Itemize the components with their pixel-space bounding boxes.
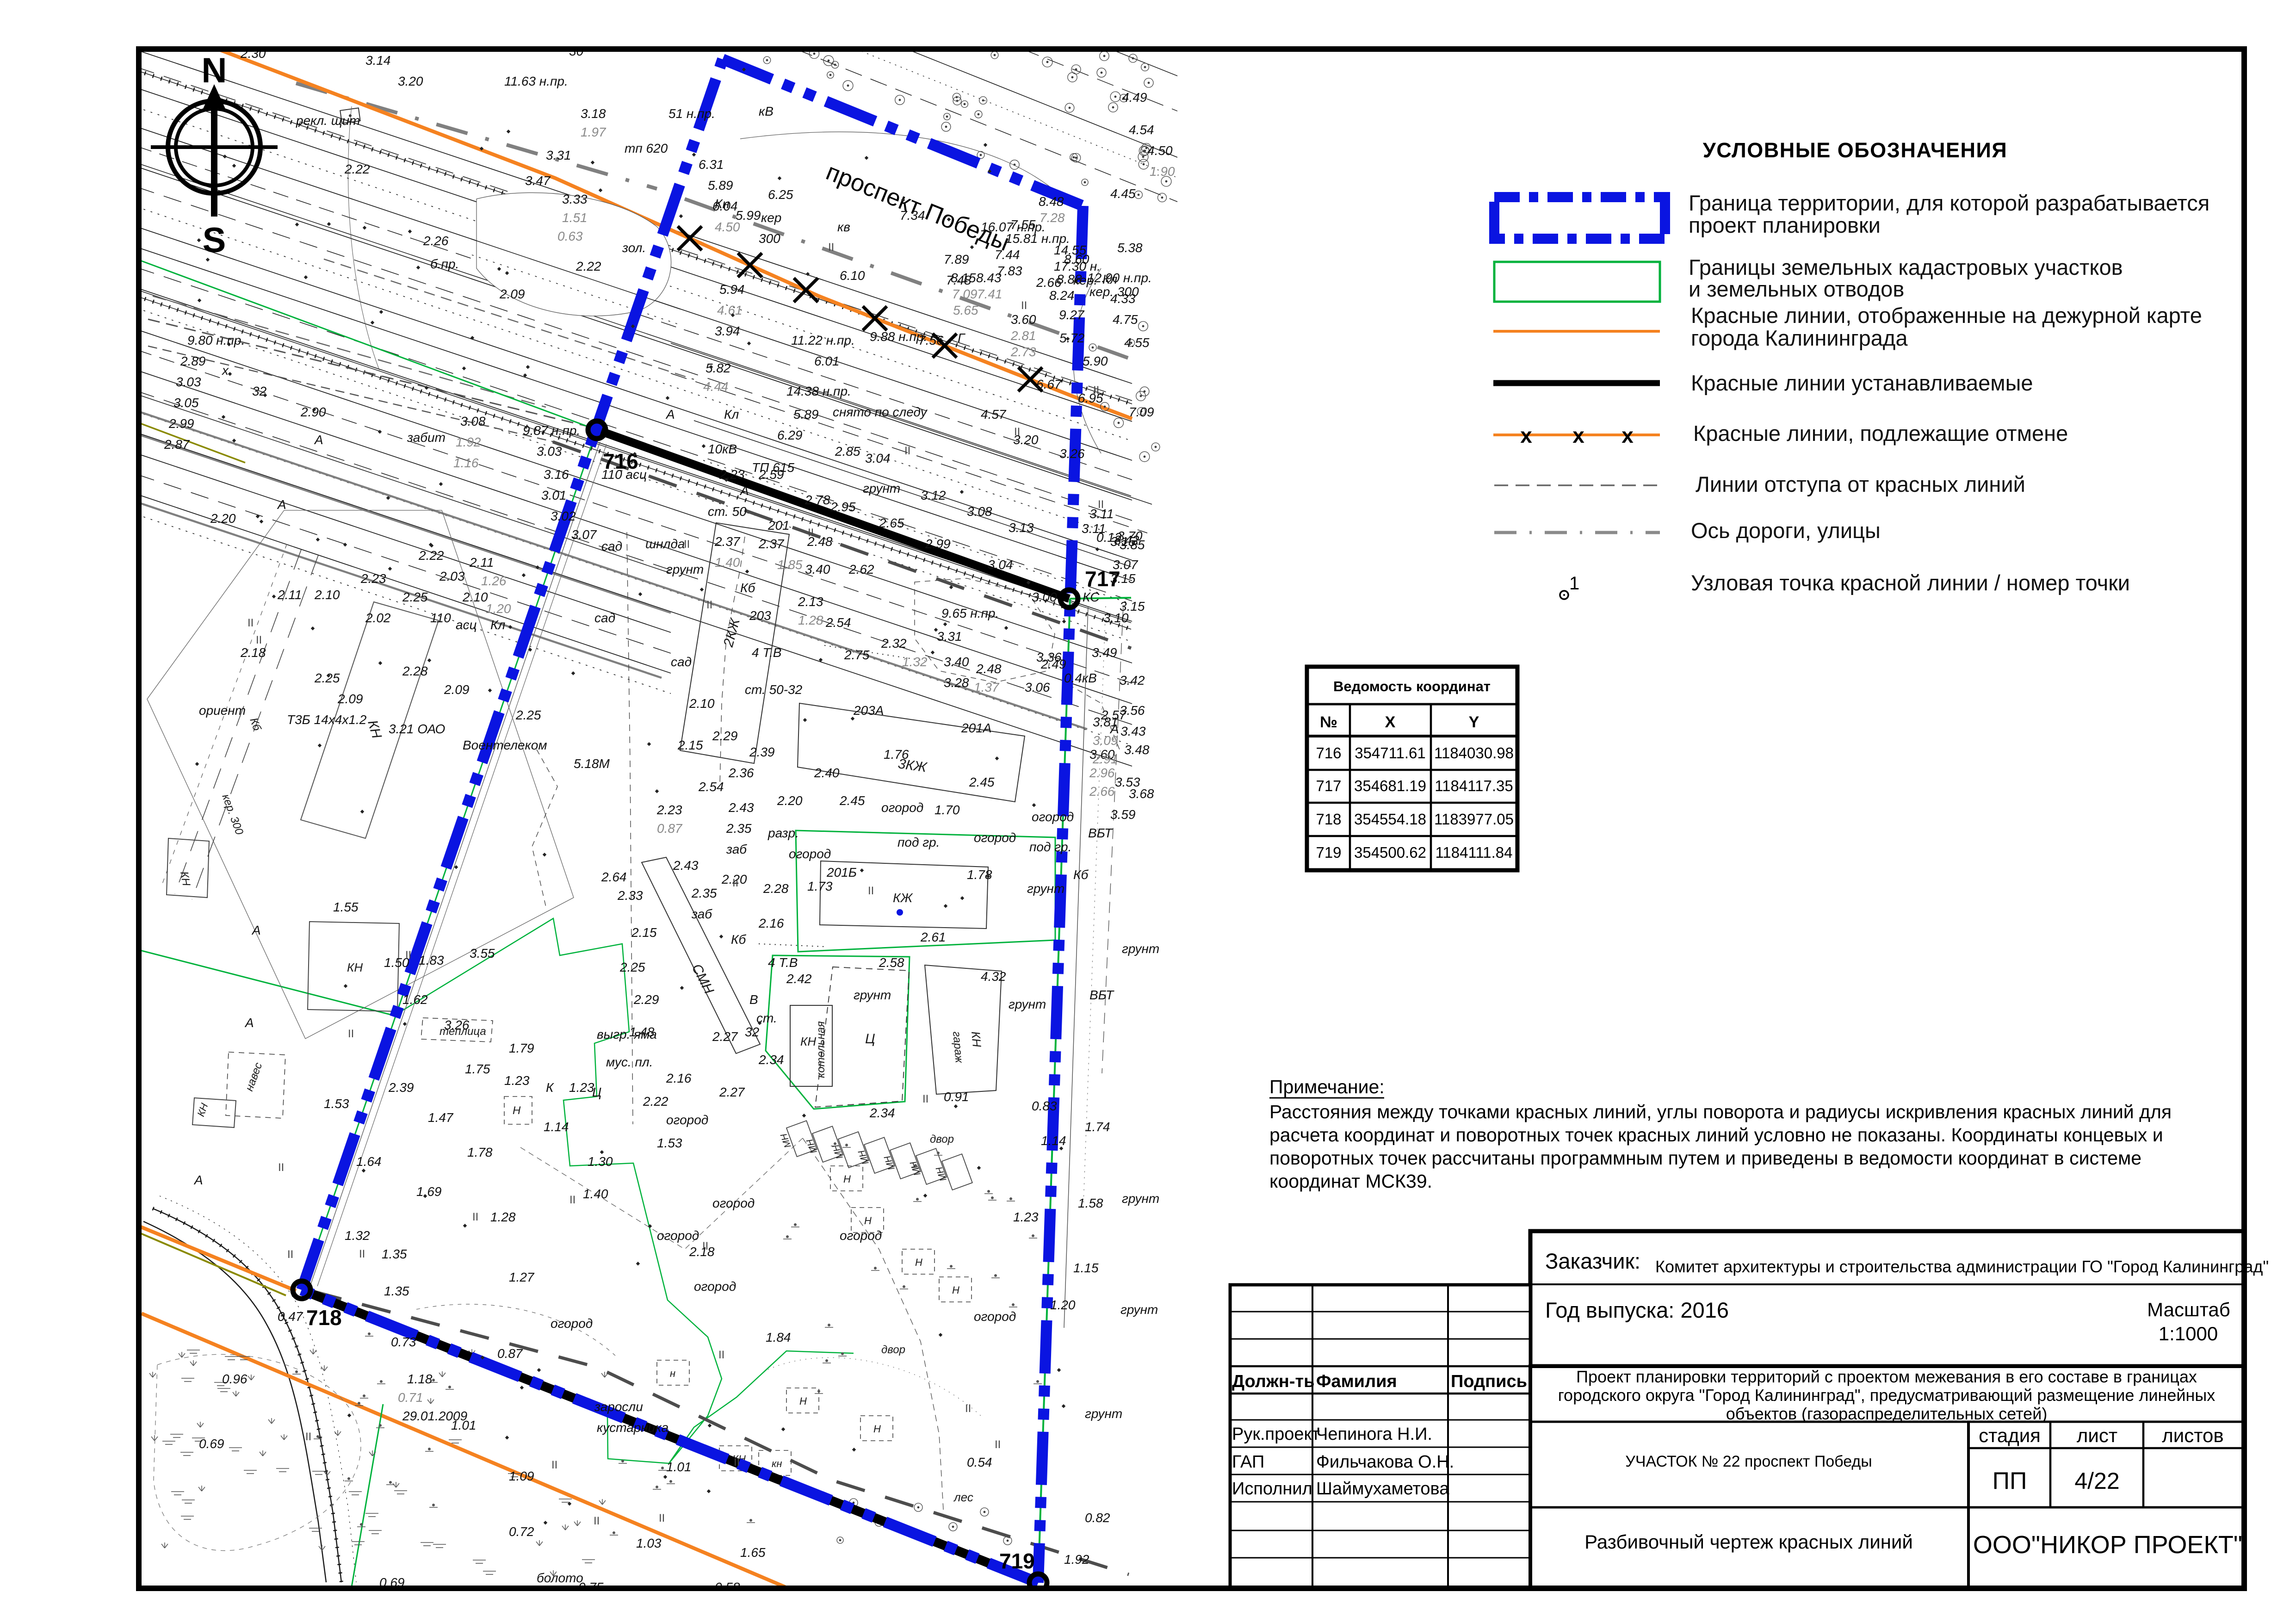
svg-text:II: II: [405, 949, 411, 961]
svg-text:2.22: 2.22: [344, 162, 370, 176]
svg-text:проект планировки: проект планировки: [1689, 213, 1881, 237]
svg-text:1.15: 1.15: [1073, 1261, 1099, 1275]
svg-text:Проект планировки территорий с: Проект планировки территорий с проектом …: [1576, 1367, 2197, 1386]
svg-text:5.65: 5.65: [953, 303, 978, 317]
svg-text:2.29: 2.29: [633, 992, 659, 1007]
svg-text:0.72: 0.72: [509, 1524, 534, 1539]
svg-text:ООО"НИКОР ПРОЕКТ": ООО"НИКОР ПРОЕКТ": [1973, 1531, 2242, 1559]
svg-text:КН: КН: [969, 1031, 984, 1048]
svg-text:листов: листов: [2162, 1425, 2223, 1446]
svg-text:2.34: 2.34: [869, 1106, 895, 1120]
svg-text:II: II: [278, 1161, 284, 1174]
svg-text:КЖ: КЖ: [893, 891, 914, 905]
svg-text:II: II: [868, 885, 874, 897]
svg-text:203А: 203А: [853, 703, 884, 718]
svg-text:координат МСК39.: координат МСК39.: [1269, 1171, 1432, 1192]
svg-text:разр.: разр.: [767, 826, 799, 840]
svg-text:7.44: 7.44: [995, 248, 1020, 262]
svg-text:огород: огород: [551, 1316, 593, 1331]
svg-text:4 Т.В: 4 Т.В: [752, 645, 781, 660]
svg-text:2.62: 2.62: [848, 562, 874, 576]
svg-text:201Б: 201Б: [826, 865, 857, 880]
svg-text:4.44: 4.44: [703, 379, 729, 394]
svg-text:II: II: [995, 1438, 1001, 1451]
svg-text:II: II: [808, 527, 814, 539]
svg-text:354500.62: 354500.62: [1354, 844, 1426, 861]
svg-text:II: II: [305, 1431, 311, 1443]
svg-text:Кб: Кб: [1073, 867, 1089, 882]
svg-text:0.96: 0.96: [222, 1372, 248, 1386]
svg-text:Кб: Кб: [740, 581, 756, 595]
svg-text:2.40: 2.40: [814, 766, 840, 780]
svg-text:огород: огород: [694, 1279, 736, 1294]
svg-text:Масштаб: Масштаб: [2147, 1299, 2230, 1320]
svg-text:кер. 300: кер. 300: [1089, 285, 1139, 299]
svg-text:Кл: Кл: [490, 618, 506, 632]
svg-text:3.08: 3.08: [460, 414, 486, 428]
svg-text:4.50: 4.50: [1147, 143, 1173, 158]
svg-text:7.09: 7.09: [1129, 405, 1154, 419]
svg-text:2.65: 2.65: [879, 516, 904, 530]
svg-text:7.55: 7.55: [1010, 217, 1036, 232]
svg-text:II: II: [551, 1459, 557, 1471]
svg-text:1:1000: 1:1000: [2159, 1323, 2218, 1344]
svg-text:1.35: 1.35: [384, 1284, 409, 1298]
svg-text:1.92: 1.92: [1064, 1552, 1089, 1567]
svg-text:Y: Y: [1469, 713, 1479, 731]
svg-text:города Калининграда: города Калининграда: [1691, 326, 1908, 350]
svg-text:3.26: 3.26: [444, 1018, 470, 1032]
svg-text:9.80 н.пр.: 9.80 н.пр.: [187, 333, 245, 347]
svg-text:2.25: 2.25: [515, 708, 541, 722]
svg-text:2.09: 2.09: [499, 287, 525, 301]
svg-text:2.20: 2.20: [777, 793, 803, 808]
svg-text:лес: лес: [953, 1490, 973, 1504]
svg-text:4.55: 4.55: [1124, 335, 1150, 350]
svg-text:2.91: 2.91: [1092, 752, 1118, 766]
svg-text:грунт: грунт: [1027, 881, 1064, 896]
svg-text:2.99: 2.99: [168, 416, 194, 431]
svg-text:Фамилия: Фамилия: [1316, 1372, 1397, 1391]
svg-text:1.28: 1.28: [798, 613, 823, 627]
svg-text:Г: Г: [958, 331, 965, 345]
svg-text:0.82: 0.82: [1085, 1511, 1110, 1525]
svg-text:2.45: 2.45: [839, 793, 865, 808]
svg-text:Узловая точка красной линии /: Узловая точка красной линии / номер точк…: [1691, 570, 2130, 595]
svg-text:2.48: 2.48: [976, 662, 1002, 676]
svg-text:3.40: 3.40: [805, 562, 830, 576]
svg-text:2.85: 2.85: [835, 444, 860, 458]
svg-text:1.01: 1.01: [451, 1418, 477, 1432]
svg-text:А: А: [314, 433, 323, 447]
svg-text:2.25: 2.25: [314, 671, 340, 685]
svg-text:К: К: [546, 1080, 554, 1095]
svg-text:1.47: 1.47: [428, 1110, 454, 1125]
svg-text:X: X: [1385, 713, 1396, 731]
svg-text:17.30 н.: 17.30 н.: [1054, 259, 1101, 273]
svg-text:2.34: 2.34: [758, 1053, 784, 1067]
svg-text:0.91: 0.91: [944, 1090, 969, 1104]
svg-text:3.07: 3.07: [571, 527, 597, 542]
svg-text:1.64: 1.64: [356, 1154, 382, 1169]
svg-text:4 Т.В: 4 Т.В: [768, 955, 798, 970]
svg-text:грунт: грунт: [1120, 1302, 1158, 1317]
svg-text:Линии отступа от красных линий: Линии отступа от красных линий: [1696, 472, 2025, 496]
svg-text:2.39: 2.39: [388, 1080, 414, 1095]
svg-text:2.45: 2.45: [969, 775, 995, 789]
svg-text:719: 719: [1316, 844, 1341, 861]
svg-text:грунт: грунт: [1122, 942, 1159, 956]
svg-text:Разбивочный чертеж красных лин: Разбивочный чертеж красных линий: [1584, 1531, 1913, 1553]
svg-text:2.18: 2.18: [240, 645, 266, 660]
svg-text:II: II: [359, 1248, 365, 1260]
svg-text:1184117.35: 1184117.35: [1435, 777, 1513, 794]
svg-text:716: 716: [1316, 744, 1341, 762]
svg-text:N: N: [202, 51, 227, 90]
svg-text:7.09: 7.09: [952, 287, 978, 301]
svg-text:грунт: грунт: [1085, 1406, 1122, 1421]
svg-text:4.54: 4.54: [1129, 123, 1154, 137]
svg-text:3.42: 3.42: [1120, 673, 1145, 688]
svg-text:2.61: 2.61: [920, 930, 946, 944]
svg-text:2.32: 2.32: [881, 636, 907, 650]
svg-text:2.23: 2.23: [719, 467, 745, 482]
svg-text:110 асц: 110 асц: [601, 467, 647, 482]
svg-text:Шаймухаметова: Шаймухаметова: [1316, 1479, 1449, 1499]
svg-text:1.40: 1.40: [583, 1187, 608, 1201]
svg-text:0.87: 0.87: [497, 1346, 523, 1361]
svg-text:ПП: ПП: [1993, 1468, 2027, 1494]
svg-text:8.24: 8.24: [1049, 288, 1075, 303]
svg-text:8.48: 8.48: [1039, 194, 1064, 209]
svg-text:201А: 201А: [961, 721, 991, 735]
svg-text:1183977.05: 1183977.05: [1434, 811, 1514, 828]
svg-text:2.89: 2.89: [180, 354, 206, 368]
svg-text:А: А: [277, 497, 286, 512]
svg-text:0.87: 0.87: [657, 821, 683, 836]
svg-text:огород: огород: [1032, 810, 1074, 824]
svg-text:1.92: 1.92: [456, 435, 481, 449]
svg-text:Красные линии, подлежащие отме: Красные линии, подлежащие отмене: [1693, 421, 2068, 446]
svg-text:1.27: 1.27: [509, 1270, 535, 1284]
svg-text:3.28: 3.28: [944, 675, 969, 690]
svg-text:1.32: 1.32: [902, 655, 928, 669]
svg-text:8.15: 8.15: [951, 271, 976, 285]
svg-text:5.89: 5.89: [793, 407, 819, 421]
svg-text:110: 110: [430, 611, 451, 625]
svg-text:заб: заб: [726, 842, 747, 856]
svg-text:лист: лист: [2077, 1425, 2117, 1446]
svg-text:5.99: 5.99: [736, 208, 761, 223]
svg-text:10кВ: 10кВ: [708, 442, 737, 456]
svg-text:1.53: 1.53: [324, 1096, 349, 1111]
svg-text:3.94: 3.94: [715, 324, 740, 338]
svg-text:2.95: 2.95: [830, 500, 856, 514]
svg-text:11.22 н.пр.: 11.22 н.пр.: [791, 333, 855, 347]
svg-text:2.54: 2.54: [698, 780, 724, 794]
svg-text:2.22: 2.22: [643, 1094, 668, 1109]
svg-text:A: A: [739, 483, 749, 498]
svg-text:2.20: 2.20: [210, 511, 236, 526]
svg-text:1.30: 1.30: [588, 1154, 613, 1169]
svg-text:асц: асц: [456, 618, 477, 632]
svg-text:3.55: 3.55: [470, 946, 495, 960]
svg-text:1.32: 1.32: [345, 1228, 370, 1243]
svg-text:зол.: зол.: [622, 241, 646, 255]
svg-text:3.33: 3.33: [562, 192, 588, 206]
svg-text:3.06: 3.06: [1025, 680, 1050, 694]
svg-text:0.71: 0.71: [398, 1390, 423, 1405]
svg-text:Ведомость координат: Ведомость координат: [1333, 678, 1491, 694]
svg-text:354711.61: 354711.61: [1355, 744, 1426, 762]
svg-text:2.22: 2.22: [418, 548, 444, 563]
svg-text:3.59: 3.59: [1110, 807, 1136, 822]
svg-text:6.10: 6.10: [840, 268, 865, 283]
svg-text:1.79: 1.79: [509, 1041, 534, 1055]
svg-text:2.26: 2.26: [423, 234, 449, 248]
svg-text:II: II: [256, 634, 262, 646]
svg-text:кв: кв: [837, 220, 850, 234]
svg-text:3.81: 3.81: [1093, 715, 1118, 729]
svg-text:8.43: 8.43: [976, 271, 1002, 285]
svg-text:ст. 50-32: ст. 50-32: [745, 682, 803, 697]
svg-text:Должн-ть: Должн-ть: [1232, 1372, 1314, 1391]
svg-text:3.31: 3.31: [937, 629, 962, 644]
svg-text:3.00: 3.00: [1032, 590, 1057, 604]
svg-text:огород: огород: [789, 847, 831, 861]
svg-text:II: II: [965, 1402, 971, 1415]
svg-text:6.04: 6.04: [712, 199, 738, 213]
svg-text:0.4кВ: 0.4кВ: [1064, 671, 1097, 685]
svg-text:А: А: [244, 1016, 254, 1030]
svg-text:Красные линии устанавливаемые: Красные линии устанавливаемые: [1691, 371, 2033, 395]
svg-text:3.21 ОАО: 3.21 ОАО: [389, 722, 445, 736]
svg-text:3.43: 3.43: [1120, 724, 1146, 738]
svg-text:0.69: 0.69: [199, 1437, 224, 1451]
svg-text:7.34: 7.34: [900, 208, 925, 223]
svg-text:3.07: 3.07: [1113, 558, 1139, 572]
svg-text:3.14: 3.14: [365, 53, 391, 68]
svg-text:2.18: 2.18: [689, 1245, 715, 1259]
svg-text:3.13: 3.13: [1009, 520, 1034, 535]
svg-text:51 н.пр.: 51 н.пр.: [668, 106, 715, 121]
svg-text:4/22: 4/22: [2074, 1468, 2119, 1494]
svg-text:2.87: 2.87: [164, 437, 190, 452]
svg-text:Н: Н: [799, 1395, 807, 1407]
svg-text:II: II: [287, 1248, 293, 1261]
svg-text:2.23: 2.23: [656, 803, 682, 817]
svg-text:7.89: 7.89: [944, 252, 969, 266]
svg-text:3.02: 3.02: [551, 509, 576, 523]
svg-text:двор: двор: [930, 1133, 954, 1146]
svg-text:3.01: 3.01: [541, 488, 567, 502]
svg-text:4.32: 4.32: [981, 969, 1006, 984]
svg-text:2.37: 2.37: [714, 534, 741, 549]
svg-text:1.01: 1.01: [666, 1460, 692, 1474]
svg-text:14.38 н.пр.: 14.38 н.пр.: [786, 384, 851, 398]
svg-text:2.11: 2.11: [277, 588, 302, 602]
svg-text:2.81: 2.81: [1010, 328, 1036, 343]
svg-text:грунт: грунт: [863, 481, 900, 496]
svg-text:огород: огород: [657, 1228, 699, 1243]
svg-text:1: 1: [1569, 573, 1579, 594]
svg-text:Н: Н: [513, 1104, 521, 1117]
svg-text:5.72: 5.72: [1059, 331, 1085, 345]
svg-text:ВБТ: ВБТ: [1088, 826, 1113, 840]
svg-text:718: 718: [1316, 811, 1341, 828]
svg-text:ст. 50: ст. 50: [708, 504, 747, 519]
svg-text:1.90: 1.90: [1150, 164, 1175, 179]
svg-text:1.76: 1.76: [884, 747, 909, 762]
svg-text:II: II: [472, 1211, 478, 1223]
svg-text:поворотных точек рассчитаны пр: поворотных точек рассчитаны программным …: [1269, 1147, 2141, 1169]
svg-text:5.82: 5.82: [706, 361, 731, 375]
svg-text:0.63: 0.63: [557, 229, 583, 243]
svg-text:6.31: 6.31: [699, 157, 724, 172]
svg-text:3.15: 3.15: [1120, 599, 1145, 613]
svg-text:Н: Н: [952, 1284, 959, 1296]
svg-text:1.40: 1.40: [715, 555, 740, 570]
svg-text:2.75: 2.75: [844, 648, 870, 662]
svg-text:1.65: 1.65: [740, 1545, 766, 1560]
svg-text:Н: Н: [843, 1173, 851, 1185]
svg-text:3.03: 3.03: [176, 375, 201, 389]
svg-text:II: II: [569, 1194, 576, 1206]
svg-text:3.12: 3.12: [921, 488, 946, 502]
svg-text:Комитет архитектуры и строител: Комитет архитектуры и строительства адми…: [1655, 1257, 2269, 1276]
svg-text:2.43: 2.43: [673, 858, 699, 873]
svg-text:Граница территории, для которо: Граница территории, для которой разрабат…: [1689, 191, 2209, 215]
svg-text:грунт: грунт: [1122, 1191, 1159, 1206]
svg-text:5.90: 5.90: [1083, 354, 1108, 368]
svg-text:А: А: [193, 1173, 203, 1187]
svg-text:2.37: 2.37: [758, 537, 785, 551]
svg-text:Красные линии, отображенные на: Красные линии, отображенные на дежурной …: [1691, 303, 2202, 328]
svg-text:Н: Н: [873, 1423, 881, 1435]
svg-text:КС: КС: [1083, 590, 1100, 604]
svg-text:II: II: [1021, 299, 1027, 312]
svg-text:9.65 н.пр.: 9.65 н.пр.: [941, 606, 999, 620]
svg-text:снято по следу: снято по следу: [833, 405, 928, 419]
svg-text:1.18: 1.18: [407, 1372, 433, 1386]
svg-text:1.16: 1.16: [453, 456, 479, 470]
svg-text:354554.18: 354554.18: [1354, 811, 1426, 828]
svg-text:1.14: 1.14: [1041, 1134, 1066, 1148]
svg-text:3.16: 3.16: [544, 467, 569, 482]
svg-text:4.75: 4.75: [1113, 312, 1138, 327]
svg-text:сад: сад: [671, 655, 692, 669]
svg-text:1.84: 1.84: [766, 1330, 791, 1344]
svg-text:3.47: 3.47: [525, 173, 551, 188]
svg-text:2.03: 2.03: [439, 569, 465, 583]
svg-text:1.23: 1.23: [1013, 1210, 1039, 1224]
svg-text:А: А: [251, 923, 261, 937]
svg-text:II: II: [684, 538, 690, 551]
svg-text:2.49: 2.49: [1040, 657, 1066, 671]
svg-text:II: II: [734, 1456, 740, 1468]
svg-text:под гр.: под гр.: [1029, 840, 1071, 854]
svg-text:6.29: 6.29: [777, 428, 803, 442]
svg-text:2.09: 2.09: [444, 682, 470, 697]
svg-text:1.83: 1.83: [419, 953, 444, 967]
svg-text:КН: КН: [178, 870, 192, 887]
svg-text:4.49: 4.49: [1122, 90, 1147, 105]
svg-text:5.38: 5.38: [1117, 241, 1143, 255]
svg-text:1.74: 1.74: [1085, 1120, 1110, 1134]
svg-text:5.18М: 5.18М: [574, 756, 610, 771]
svg-text:7.28: 7.28: [1040, 211, 1065, 225]
svg-text:300: 300: [759, 231, 780, 246]
svg-text:3.85: 3.85: [1120, 538, 1145, 552]
svg-text:1.97: 1.97: [581, 125, 606, 139]
svg-text:718: 718: [306, 1306, 342, 1330]
svg-text:14.55: 14.55: [1054, 243, 1086, 257]
svg-text:2.78: 2.78: [805, 493, 830, 507]
svg-text:Фильчакова О.Н.: Фильчакова О.Н.: [1316, 1452, 1454, 1472]
svg-text:кустарника: кустарника: [597, 1420, 668, 1435]
svg-text:6.25: 6.25: [768, 187, 793, 202]
svg-text:6.95: 6.95: [1078, 391, 1103, 405]
svg-text:II: II: [594, 1515, 600, 1527]
svg-text:7.41: 7.41: [977, 287, 1003, 301]
svg-text:II: II: [1098, 498, 1104, 511]
svg-text:н: н: [670, 1368, 675, 1379]
svg-text:В: В: [749, 992, 758, 1007]
svg-text:3.26: 3.26: [1059, 446, 1085, 461]
svg-text:x: x: [1572, 423, 1584, 447]
svg-text:1.73: 1.73: [807, 879, 833, 893]
svg-text:котельная: котельная: [815, 1021, 827, 1078]
svg-text:2.11: 2.11: [469, 555, 494, 570]
svg-text:Примечание:: Примечание:: [1269, 1076, 1385, 1097]
svg-text:32: 32: [745, 1025, 760, 1039]
svg-text:1.69: 1.69: [416, 1184, 442, 1199]
svg-text:717: 717: [1316, 777, 1341, 794]
svg-text:3.31: 3.31: [546, 148, 571, 162]
svg-text:ориент: ориент: [199, 703, 246, 718]
svg-text:2.28: 2.28: [763, 881, 789, 896]
svg-text:x: x: [1621, 423, 1634, 447]
svg-text:x: x: [1520, 423, 1532, 447]
svg-text:1.75: 1.75: [465, 1062, 490, 1076]
svg-text:Чепинога Н.И.: Чепинога Н.И.: [1316, 1425, 1432, 1444]
svg-text:огород: огород: [666, 1113, 708, 1127]
svg-text:огород: огород: [712, 1196, 755, 1210]
svg-text:грунт: грунт: [854, 988, 891, 1002]
svg-text:9.27: 9.27: [1059, 308, 1085, 322]
svg-text:2.90: 2.90: [300, 405, 326, 419]
svg-text:2.36: 2.36: [728, 766, 754, 780]
svg-text:Заказчик:: Заказчик:: [1545, 1249, 1640, 1273]
svg-text:Кб: Кб: [731, 932, 747, 947]
svg-text:2.58: 2.58: [879, 955, 904, 970]
svg-text:2.16: 2.16: [666, 1071, 692, 1085]
svg-text:2.16: 2.16: [758, 916, 784, 930]
svg-text:2.27: 2.27: [719, 1085, 745, 1099]
svg-text:2.66: 2.66: [1089, 784, 1115, 799]
svg-text:2.23: 2.23: [360, 571, 386, 586]
svg-text:II: II: [828, 241, 834, 254]
svg-text:2.42: 2.42: [786, 972, 812, 986]
svg-text:УЧАСТОК № 22 проспект Победы: УЧАСТОК № 22 проспект Победы: [1625, 1453, 1872, 1470]
svg-text:3.40: 3.40: [944, 655, 969, 669]
svg-text:3.49: 3.49: [1092, 645, 1117, 660]
svg-text:3.08: 3.08: [967, 504, 992, 519]
svg-text:двор: двор: [881, 1344, 905, 1356]
svg-text:1.20: 1.20: [1050, 1298, 1076, 1312]
svg-text:3.60: 3.60: [1011, 312, 1036, 327]
svg-text:4.61: 4.61: [717, 303, 743, 317]
